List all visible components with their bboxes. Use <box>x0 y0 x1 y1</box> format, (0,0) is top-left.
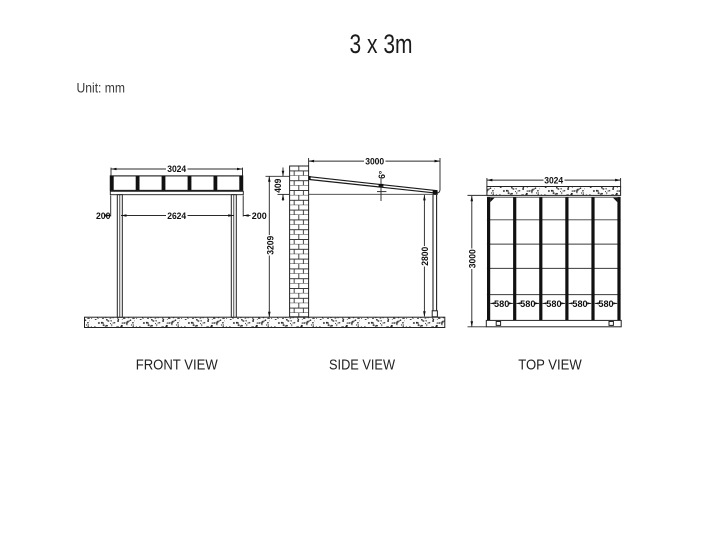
svg-text:580: 580 <box>546 298 561 309</box>
svg-text:3209: 3209 <box>265 236 276 255</box>
svg-text:SIDE VIEW: SIDE VIEW <box>329 357 396 374</box>
svg-text:2624: 2624 <box>167 210 187 221</box>
svg-text:580: 580 <box>572 298 587 309</box>
svg-text:3000: 3000 <box>365 155 384 166</box>
svg-text:2800: 2800 <box>419 247 430 266</box>
svg-text:6°: 6° <box>376 170 387 178</box>
svg-text:Unit: mm: Unit: mm <box>77 81 126 97</box>
svg-text:580: 580 <box>494 298 509 309</box>
svg-text:3 x 3m: 3 x 3m <box>350 29 413 59</box>
svg-text:200: 200 <box>96 210 111 221</box>
svg-text:3024: 3024 <box>167 163 187 174</box>
svg-text:200: 200 <box>252 210 267 221</box>
svg-text:FRONT VIEW: FRONT VIEW <box>136 357 219 374</box>
svg-text:TOP VIEW: TOP VIEW <box>518 357 582 374</box>
svg-text:3000: 3000 <box>467 249 478 268</box>
svg-text:580: 580 <box>520 298 535 309</box>
svg-text:580: 580 <box>598 298 613 309</box>
svg-text:409: 409 <box>272 179 283 193</box>
svg-text:3024: 3024 <box>544 174 564 185</box>
